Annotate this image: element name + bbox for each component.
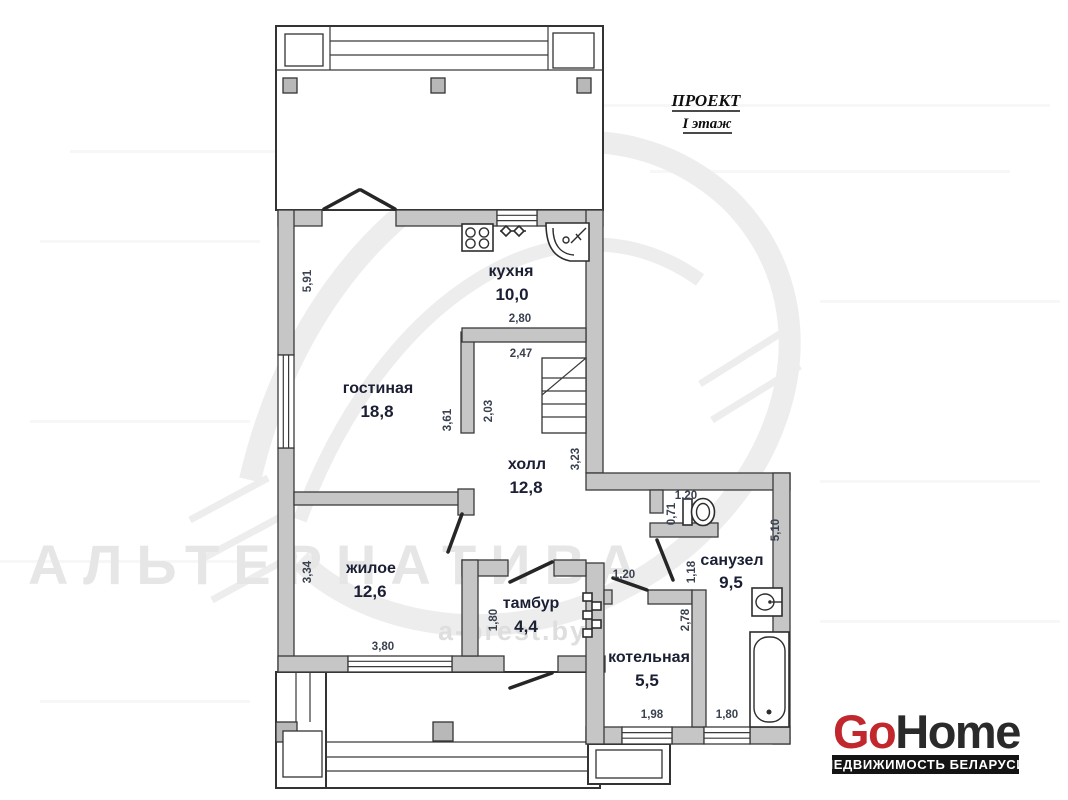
dim-bedroom-left: 3,34 (302, 560, 314, 583)
dim-san-right: 5,10 (770, 519, 782, 541)
bathtub-icon (750, 632, 789, 727)
dim-san-door: 1,18 (686, 560, 698, 583)
bedroom-window (348, 656, 452, 672)
terrace-column (283, 78, 297, 93)
floor-subtitle: I этаж (681, 116, 731, 132)
kitchen-window (497, 210, 537, 226)
room-label-bedroom: жилое (345, 560, 396, 577)
dim-bedroom-bottom: 3,80 (372, 641, 394, 653)
room-label-boiler: котельная (608, 649, 690, 666)
floorplan-drawing: АЛЬТЕРНАТИВА a-brest.by (0, 0, 1068, 800)
floorplan-page: АЛЬТЕРНАТИВА a-brest.by (0, 0, 1068, 800)
room-area-bathroom: 9,5 (719, 573, 743, 592)
room-area-vestibule: 4,4 (514, 617, 538, 636)
logo-home: Home (895, 705, 1020, 758)
room-area-bedroom: 12,6 (353, 582, 386, 601)
dim-wc-niche-w: 1,20 (675, 490, 697, 502)
gohome-logo: GoHome НЕДВИЖИМОСТЬ БЕЛАРУСИ (824, 705, 1027, 774)
terrace-column (577, 78, 591, 93)
room-area-kitchen: 10,0 (495, 285, 528, 304)
logo-go: Go (833, 705, 895, 758)
room-label-bathroom: санузел (700, 552, 763, 569)
dim-hall-top: 2,47 (510, 348, 532, 360)
dim-living-left: 5,91 (302, 269, 314, 292)
porch-column (433, 722, 453, 741)
plan-title: ПРОЕКТ I этаж (671, 91, 742, 133)
room-area-hall: 12,8 (509, 478, 542, 497)
stove-icon (462, 224, 493, 251)
terrace (276, 26, 603, 210)
svg-text:GoHome: GoHome (833, 705, 1020, 758)
dim-boiler-door: 1,20 (613, 569, 635, 581)
watermark-site: a-brest.by (438, 616, 587, 646)
dim-kitchen-w: 2,80 (509, 313, 531, 325)
washbasin-icon (752, 588, 782, 616)
dim-vestibule-left: 1,80 (488, 609, 500, 631)
gas-valves-icon (500, 226, 526, 236)
logo-tagline: НЕДВИЖИМОСТЬ БЕЛАРУСИ (824, 757, 1027, 772)
dim-living-wall: 3,61 (442, 408, 454, 431)
room-area-living: 18,8 (360, 402, 393, 421)
terrace-column (431, 78, 445, 93)
room-area-boiler: 5,5 (635, 671, 659, 690)
dim-boiler-bottom: 1,98 (641, 709, 664, 721)
project-title: ПРОЕКТ (671, 91, 742, 110)
dim-hall-right: 3,23 (570, 448, 582, 470)
toilet-icon (683, 499, 715, 526)
living-window (278, 355, 294, 448)
room-label-hall: холл (508, 456, 546, 473)
boiler-window (622, 727, 672, 744)
staircase (542, 358, 586, 433)
dim-bath-bottom: 1,80 (716, 709, 738, 721)
dim-boiler-right: 2,78 (680, 608, 692, 631)
dim-hall-left: 2,03 (483, 400, 495, 422)
room-label-kitchen: кухня (489, 263, 534, 280)
room-label-living: гостиная (343, 380, 413, 397)
dim-wc-niche-h: 0,71 (666, 502, 678, 525)
room-label-vestibule: тамбур (503, 595, 560, 612)
bath-window (704, 727, 750, 744)
